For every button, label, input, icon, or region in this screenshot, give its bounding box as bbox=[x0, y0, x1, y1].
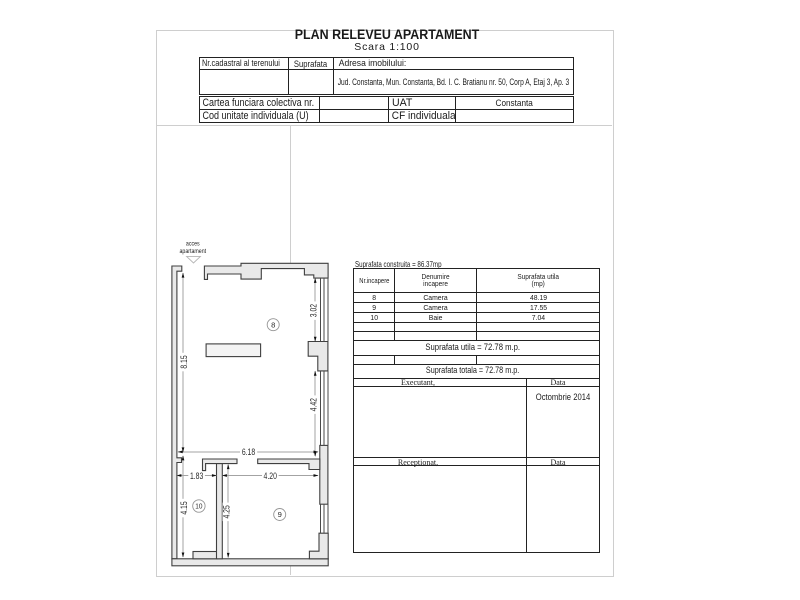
svg-text:acces: acces bbox=[186, 241, 200, 248]
svg-text:10: 10 bbox=[195, 503, 202, 511]
svg-text:3.02: 3.02 bbox=[309, 304, 319, 317]
svg-text:6.18: 6.18 bbox=[242, 447, 256, 457]
svg-text:apartament: apartament bbox=[179, 248, 206, 255]
svg-text:4.20: 4.20 bbox=[264, 471, 278, 481]
svg-text:9: 9 bbox=[278, 510, 282, 519]
svg-text:1.83: 1.83 bbox=[190, 471, 204, 481]
svg-text:4.42: 4.42 bbox=[309, 398, 319, 411]
svg-text:8.15: 8.15 bbox=[179, 355, 189, 369]
svg-text:4.25: 4.25 bbox=[222, 505, 232, 519]
svg-text:4.15: 4.15 bbox=[179, 501, 189, 515]
svg-text:8: 8 bbox=[271, 320, 275, 329]
